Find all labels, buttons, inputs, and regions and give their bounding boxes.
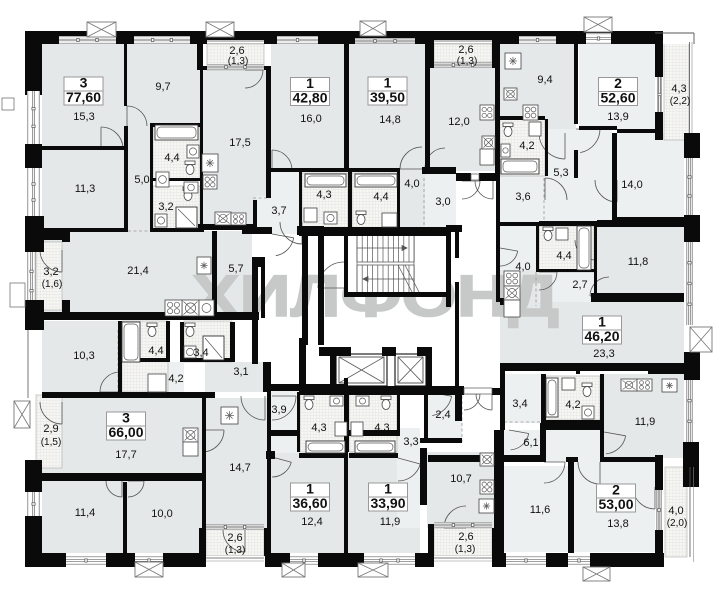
svg-text:(2,2): (2,2) [670, 96, 691, 107]
svg-text:3,7: 3,7 [271, 205, 286, 217]
svg-text:2,9: 2,9 [43, 423, 58, 435]
svg-text:(1,3): (1,3) [225, 545, 246, 556]
svg-text:3,4: 3,4 [193, 347, 208, 359]
svg-text:(1,3): (1,3) [455, 544, 476, 555]
svg-text:4,4: 4,4 [164, 152, 179, 164]
svg-text:4,4: 4,4 [556, 250, 571, 262]
svg-text:2,6: 2,6 [458, 531, 473, 543]
svg-text:4,3: 4,3 [311, 422, 326, 434]
svg-text:2,6: 2,6 [458, 44, 473, 56]
svg-text:3,3: 3,3 [403, 436, 418, 448]
svg-text:(1,5): (1,5) [41, 437, 62, 448]
svg-text:4,4: 4,4 [148, 345, 163, 357]
svg-text:2,6: 2,6 [227, 532, 242, 544]
svg-text:14,7: 14,7 [229, 462, 250, 474]
svg-text:10,0: 10,0 [151, 508, 172, 520]
svg-text:9,7: 9,7 [155, 81, 170, 93]
svg-text:12,0: 12,0 [448, 116, 469, 128]
svg-text:3,2: 3,2 [158, 201, 173, 213]
svg-text:12,4: 12,4 [301, 516, 322, 528]
svg-text:2,4: 2,4 [435, 409, 450, 421]
svg-text:14,8: 14,8 [379, 114, 400, 126]
svg-text:15,3: 15,3 [73, 111, 94, 123]
svg-text:9,4: 9,4 [537, 74, 552, 86]
svg-text:21,4: 21,4 [127, 265, 148, 277]
svg-text:4,3: 4,3 [316, 189, 331, 201]
svg-text:(1,3): (1,3) [457, 56, 478, 67]
svg-text:42,80: 42,80 [292, 90, 327, 106]
svg-text:13,9: 13,9 [607, 111, 628, 123]
svg-text:4,2: 4,2 [519, 140, 534, 152]
svg-text:5,0: 5,0 [134, 174, 149, 186]
svg-text:11,3: 11,3 [75, 183, 96, 195]
svg-text:53,00: 53,00 [598, 496, 633, 512]
svg-text:13,8: 13,8 [607, 518, 628, 530]
svg-text:3,0: 3,0 [435, 196, 450, 208]
svg-text:(1,6): (1,6) [42, 279, 63, 290]
svg-text:10,7: 10,7 [450, 473, 471, 485]
svg-text:3,2: 3,2 [43, 266, 58, 278]
svg-text:4,3: 4,3 [374, 422, 389, 434]
svg-text:14,0: 14,0 [621, 179, 642, 191]
svg-text:6,1: 6,1 [523, 437, 538, 449]
svg-text:3,9: 3,9 [271, 404, 286, 416]
svg-text:3,6: 3,6 [515, 191, 530, 203]
svg-text:2,7: 2,7 [572, 279, 587, 291]
svg-text:33,90: 33,90 [370, 495, 405, 511]
svg-text:10,3: 10,3 [73, 350, 94, 362]
svg-text:66,00: 66,00 [108, 424, 143, 440]
svg-text:4,2: 4,2 [168, 373, 183, 385]
svg-text:4,0: 4,0 [668, 505, 683, 517]
svg-text:3,1: 3,1 [233, 366, 248, 378]
svg-text:11,9: 11,9 [380, 516, 401, 528]
svg-text:4,0: 4,0 [515, 261, 530, 273]
svg-text:3,4: 3,4 [512, 398, 527, 410]
svg-text:11,4: 11,4 [75, 507, 96, 519]
svg-text:4,2: 4,2 [565, 399, 580, 411]
svg-text:52,60: 52,60 [600, 90, 635, 106]
svg-text:4,3: 4,3 [671, 83, 686, 95]
svg-text:4,4: 4,4 [373, 191, 388, 203]
svg-text:77,60: 77,60 [66, 89, 101, 105]
svg-text:(2,0): (2,0) [667, 518, 688, 529]
svg-text:11,8: 11,8 [628, 256, 649, 268]
svg-text:17,5: 17,5 [229, 137, 250, 149]
svg-text:5,7: 5,7 [228, 263, 243, 275]
svg-text:5,3: 5,3 [553, 167, 568, 179]
svg-text:(1,3): (1,3) [228, 56, 249, 67]
svg-text:46,20: 46,20 [584, 328, 619, 344]
svg-text:11,6: 11,6 [530, 504, 551, 516]
svg-text:16,0: 16,0 [300, 113, 321, 125]
svg-text:17,7: 17,7 [115, 449, 136, 461]
svg-text:36,60: 36,60 [292, 495, 327, 511]
svg-text:4,0: 4,0 [404, 178, 419, 190]
svg-text:23,3: 23,3 [593, 348, 614, 360]
svg-text:11,9: 11,9 [635, 416, 656, 428]
svg-text:39,50: 39,50 [370, 89, 405, 105]
